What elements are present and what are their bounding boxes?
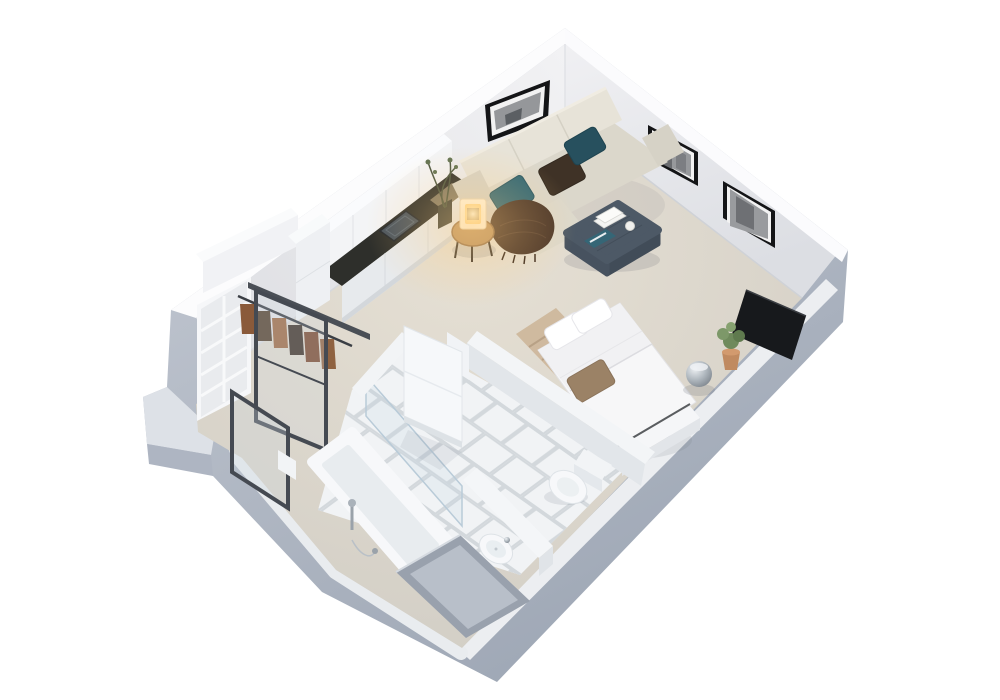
lamp-ambient-glow: [366, 146, 576, 306]
stool-top: [690, 363, 708, 371]
plant-pot-rim: [722, 349, 740, 356]
white-vase: [626, 222, 635, 231]
floorplan-svg: [0, 0, 1000, 700]
basin-drain: [495, 548, 498, 551]
floorplan-render: [0, 0, 1000, 700]
clothes-item: [240, 304, 256, 334]
bathroom-door: [400, 326, 462, 470]
basin-tap: [504, 537, 510, 543]
